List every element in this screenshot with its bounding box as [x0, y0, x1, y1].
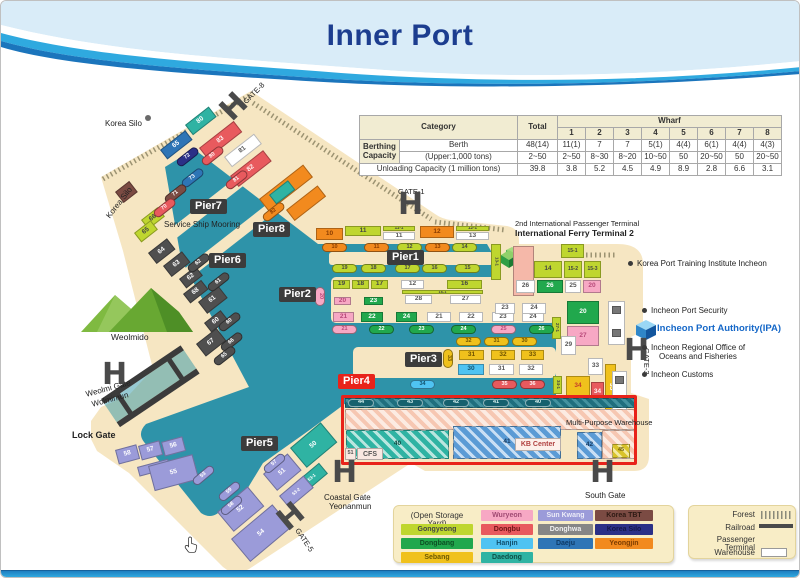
wharf-col-header: 2 [586, 128, 614, 140]
wharf-col-header: 6 [698, 128, 726, 140]
table-cell: 5(1) [642, 140, 670, 152]
table-cell: 4(4) [726, 140, 754, 152]
berth-block: 19 [333, 280, 350, 289]
ship: 24 [451, 325, 476, 334]
table-cell: 5.2 [586, 164, 614, 176]
table-cell: 48(14) [518, 140, 558, 152]
table-cell: 20~50 [754, 152, 782, 164]
legend-chip-dongbang: Dongbang [401, 538, 473, 549]
pier-label-pier8: Pier8 [253, 222, 290, 237]
map-label: Service Ship Mooring [164, 221, 240, 230]
ship: 16 [422, 264, 447, 273]
facility-note: Korea Port Training Institute Incheon [637, 259, 767, 268]
table-cell: 4(4) [670, 140, 698, 152]
ship: 34 [410, 380, 435, 389]
berth-block: 33 [521, 350, 544, 360]
map-label: Yeonanmun [329, 503, 371, 512]
map-label: 2nd International Passenger Terminal [515, 220, 639, 228]
pier-label-pier6: Pier6 [209, 253, 246, 268]
table-cell: 3.1 [754, 164, 782, 176]
gate-icon: H [102, 364, 127, 387]
map-label: Weolmido [111, 333, 149, 342]
ship: 44 [348, 399, 374, 407]
table-cell: 2~50 [518, 152, 558, 164]
berth-block: 25 [565, 280, 581, 293]
table-cell: 8~30 [586, 152, 614, 164]
cursor-icon [185, 537, 197, 552]
berth-block [615, 376, 624, 384]
berth-block: 16 [447, 280, 482, 289]
berth-block: 12 [401, 280, 424, 289]
berth-block: 21 [427, 312, 451, 322]
legend-label-railroad: Railroad [691, 524, 755, 532]
ship: 11 [364, 243, 389, 252]
wharf-col-header: 4 [642, 128, 670, 140]
gate-icon: H [590, 462, 615, 485]
berth-block: 15-3 [584, 261, 601, 278]
berth-block: 34 [566, 376, 590, 397]
note-bullet-icon [642, 372, 647, 377]
map-label: Multi-Purpose Warehouse [566, 419, 652, 427]
berth-block: 33 [588, 358, 603, 375]
table-cell: 39.8 [518, 164, 558, 176]
map-label: Korea Silo [105, 120, 142, 129]
ship: 14 [452, 243, 477, 252]
berth-block: 22 [459, 312, 483, 322]
ship: 26 [529, 325, 554, 334]
row-label: Berthing Capacity [360, 140, 400, 164]
ship: 10 [322, 243, 347, 252]
berth-block: 16-1 [402, 290, 483, 294]
ship: 19 [332, 264, 357, 273]
page-title: Inner Port [1, 19, 799, 53]
table-cell: 4.9 [642, 164, 670, 176]
berth-block: 32 [491, 350, 515, 360]
pier-label-pier2: Pier2 [279, 287, 316, 302]
forest-icon [761, 511, 791, 519]
berthing-capacity-table: CategoryTotalWharf12345678Berthing Capac… [359, 115, 782, 176]
berth-block: 11 [345, 226, 381, 236]
berth-block: 11-1 [383, 226, 415, 231]
pier-label-pier7: Pier7 [190, 199, 227, 214]
pier-label-pier5: Pier5 [241, 436, 278, 451]
berth-block: 30 [458, 364, 484, 375]
map-label: International Ferry Terminal 2 [515, 229, 634, 238]
table-cell: 8.9 [670, 164, 698, 176]
table-cell: 6(1) [698, 140, 726, 152]
ship: 20 [315, 287, 325, 306]
berth-block: 23 [364, 297, 383, 305]
railroad-icon [759, 524, 793, 528]
pier-label-pier3: Pier3 [405, 352, 442, 367]
ship: 41 [483, 399, 509, 407]
ship: 33 [443, 349, 453, 368]
wharf-col-header: 8 [754, 128, 782, 140]
berth-block: 13-1 [491, 244, 501, 280]
table-header: Category [360, 116, 518, 140]
table-cell: 2.8 [698, 164, 726, 176]
note-bullet-icon [642, 345, 647, 350]
table-cell: 4.5 [614, 164, 642, 176]
ship: 22 [369, 325, 394, 334]
company-legend: (Open Storage Yard)WuryeonSun KwangKorea… [393, 505, 674, 563]
table-cell: 50 [670, 152, 698, 164]
gate-icon: H [624, 340, 649, 363]
berth-block: CFS [357, 448, 383, 460]
ship: 40 [525, 399, 551, 407]
table-cell: 20~50 [698, 152, 726, 164]
wharf-col-header: 5 [670, 128, 698, 140]
ship: 43 [397, 399, 423, 407]
table-cell: 11(1) [558, 140, 586, 152]
ship: 21 [332, 325, 357, 334]
inner-port-map-page: Inner Port [0, 0, 800, 578]
legend-chip-daeju: Daeju [538, 538, 593, 549]
berth-block: 26 [537, 280, 563, 293]
table-cell: 2~50 [558, 152, 586, 164]
gate-icon: H [398, 194, 423, 217]
ship: 31 [484, 337, 509, 346]
legend-chip-daedong: Daedong [481, 552, 533, 563]
gate-icon: H [332, 462, 357, 485]
legend-chip-yeongjin: Yeongjin [595, 538, 653, 549]
table-header: Wharf [558, 116, 782, 128]
berth-block: 11 [383, 232, 415, 240]
legend-chip-gongyeong: Gongyeong [401, 524, 473, 535]
table-header: Total [518, 116, 558, 140]
ship: 36 [520, 380, 545, 389]
note-bullet-icon [642, 308, 647, 313]
facility-note: Incheon Regional Office of [651, 343, 745, 352]
capacity-table: CategoryTotalWharf12345678Berthing Capac… [359, 115, 782, 176]
ship: 23 [409, 325, 434, 334]
legend-chip-hanjin: Hanjin [481, 538, 533, 549]
facility-note: Incheon Port Security [651, 306, 727, 315]
table-cell: 7 [586, 140, 614, 152]
berth-block: 15-2 [564, 261, 582, 278]
berth-block: 22 [361, 312, 383, 322]
berth-block: 17 [371, 280, 388, 289]
table-cell: 4(3) [754, 140, 782, 152]
berth-block: 13 [456, 232, 489, 240]
berth-block: 26 [516, 280, 535, 293]
ship: 42 [443, 399, 469, 407]
legend-chip-sebang: Sebang [401, 552, 473, 563]
facility-note: Incheon Customs [651, 370, 713, 379]
map-label: South Gate [585, 492, 625, 501]
row-label: Unloading Capacity (1 million tons) [360, 164, 518, 176]
berth-block: 34-1 [553, 376, 562, 394]
pier-label-pier1: Pier1 [387, 250, 424, 265]
ship: 30 [512, 337, 537, 346]
berth-block: 29 [561, 336, 576, 355]
legend-chip-sunkwang: Sun Kwang [538, 510, 593, 521]
berth-block: 28 [405, 295, 432, 304]
berth-block: 24 [396, 312, 417, 322]
row-sublabel: Berth [400, 140, 518, 152]
table-cell: 7 [614, 140, 642, 152]
table-cell: 50 [726, 152, 754, 164]
berth-block: 20 [334, 297, 351, 305]
berth-block: 31 [489, 364, 514, 375]
berth-block: 14 [534, 261, 562, 278]
berth-block: 20 [567, 301, 599, 324]
legend-chip-dongbu: Dongbu [481, 524, 533, 535]
berth-block [612, 306, 621, 314]
berth-block: 31 [459, 350, 484, 360]
ship: 18 [361, 264, 386, 273]
ship: 32 [456, 337, 481, 346]
berth-block: 12 [420, 226, 454, 238]
warehouse-icon [761, 548, 787, 557]
row-sublabel: (Upper:1,000 tons) [400, 152, 518, 164]
pier-label-pier4: Pier4 [338, 374, 375, 389]
berth-block: 24 [522, 303, 546, 314]
ship: 13 [425, 243, 450, 252]
ship: 15 [455, 264, 480, 273]
map-label: Lock Gate [72, 431, 116, 441]
footer-bar [1, 570, 800, 577]
wharf-col-header: 1 [558, 128, 586, 140]
legend-chip-donghwa: Donghwa [538, 524, 593, 535]
symbol-legend: ForestRailroadPassenger TerminalWarehous… [688, 505, 796, 559]
ship: 17 [395, 264, 420, 273]
ship: 35 [492, 380, 517, 389]
legend-chip-koreasilo: Korea Silo [595, 524, 653, 535]
table-cell: 10~50 [642, 152, 670, 164]
berth-block: 20 [583, 280, 601, 293]
facility-note: Oceans and Fisheries [659, 352, 737, 361]
berth-block: 23 [495, 303, 515, 314]
legend-label-warehouse: Warehouse [691, 549, 755, 557]
legend-chip-wuryeon: Wuryeon [481, 510, 533, 521]
table-cell: 6.6 [726, 164, 754, 176]
table-cell: 8~20 [614, 152, 642, 164]
berth-block [612, 329, 621, 337]
legend-chip-koreatbt: Korea TBT [595, 510, 653, 521]
berth-block: 27 [450, 295, 481, 304]
ipa-label: Incheon Port Authority(IPA) [657, 323, 781, 334]
berth-block: 12-1 [456, 226, 489, 231]
wharf-col-header: 3 [614, 128, 642, 140]
note-bullet-icon [628, 261, 633, 266]
legend-label-forest: Forest [691, 511, 755, 519]
berth-block: 15-1 [561, 244, 584, 258]
berth-block: KB Center [515, 438, 561, 451]
berth-block: 18 [352, 280, 369, 289]
wharf-col-header: 7 [726, 128, 754, 140]
table-cell: 3.8 [558, 164, 586, 176]
berth-block: 21 [333, 312, 354, 322]
korea-silo-dot [145, 115, 151, 121]
ship: 25 [491, 325, 516, 334]
berth-block: 10 [316, 228, 343, 240]
berth-block: 32 [519, 364, 543, 375]
